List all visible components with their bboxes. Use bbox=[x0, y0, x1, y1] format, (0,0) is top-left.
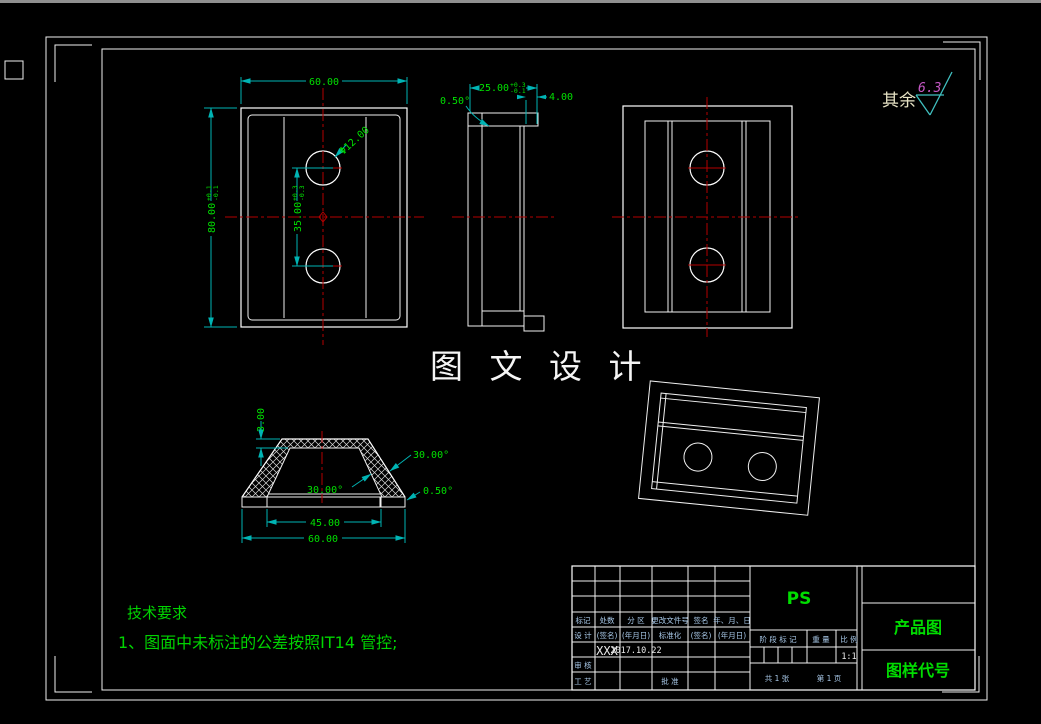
hole-left bbox=[683, 442, 714, 473]
side-view: 25.00 +0.3 -0.1 4.00 0.50° bbox=[440, 81, 573, 331]
tb-header-qianming2: (签名) bbox=[597, 630, 618, 640]
tb-drawing-title: 产品图 bbox=[894, 618, 942, 637]
layout-marker-square bbox=[5, 61, 23, 79]
dim-side-step: 4.00 bbox=[517, 92, 573, 124]
tb-design-date: 2017.10.22 bbox=[610, 646, 661, 656]
dim-side-taper-text: 0.50° bbox=[440, 96, 470, 107]
dim-base-taper: 0.50° bbox=[407, 486, 453, 500]
tech-requirements: 技术要求 1、图面中未标注的公差按照IT14 管控; bbox=[118, 604, 398, 652]
tech-item-1: 1、图面中未标注的公差按照IT14 管控; bbox=[118, 633, 398, 652]
tb-header-biaozhunhua: 标准化 bbox=[659, 630, 682, 640]
dim-hole-spacing-text: 35.00 bbox=[293, 202, 304, 232]
dim-hole-spacing-toldn: -0.3 bbox=[298, 185, 306, 201]
tb-drawing-code: 图样代号 bbox=[886, 661, 950, 680]
hole-right bbox=[747, 451, 778, 482]
dim-inner-width: 45.00 bbox=[267, 509, 381, 529]
tb-page-count: 第 1 页 bbox=[817, 673, 842, 683]
dim-inner-angle: 30.00° bbox=[307, 474, 371, 496]
dim-hole-dia-text: Φ12.00 bbox=[338, 125, 372, 157]
dim-outer-width-text: 60.00 bbox=[308, 534, 338, 545]
cad-viewport: 60.00 80.00 +0.1 -0.1 35.00 +0.3 -0.3 bbox=[0, 0, 1041, 724]
front-view: 60.00 80.00 +0.1 -0.1 35.00 +0.3 -0.3 bbox=[204, 77, 424, 345]
tb-row-shenhe: 审 核 bbox=[574, 660, 592, 670]
dim-front-height-text: 80.00 bbox=[207, 203, 218, 233]
tb-scale-value: 1:1 bbox=[841, 652, 856, 662]
section-view: 3.00 30.00° 30.00° 0.50° 45.00 bbox=[242, 408, 453, 545]
title-block: 标记 处数 分 区 更改文件号 签名 年、月、日 设 计 (签名) (年月日) … bbox=[572, 566, 975, 690]
dim-front-width-text: 60.00 bbox=[309, 77, 339, 88]
tb-row-pizhun: 批 准 bbox=[661, 676, 679, 686]
dim-side-depth-toldn: -0.1 bbox=[510, 87, 526, 95]
tb-header-qianming3: (签名) bbox=[691, 630, 712, 640]
tech-title: 技术要求 bbox=[127, 604, 187, 622]
tb-company: PS bbox=[787, 589, 812, 609]
tb-header-biaoji: 标记 bbox=[576, 615, 591, 625]
dim-front-height-toldn: -0.1 bbox=[212, 185, 220, 201]
tb-header-chushu: 处数 bbox=[600, 615, 615, 625]
tb-header-nianyueri2: (年月日) bbox=[718, 630, 746, 640]
surface-finish-note: 其余 6.3 bbox=[882, 72, 952, 115]
dim-inner-angle-text: 30.00° bbox=[307, 485, 343, 496]
iso-view bbox=[639, 381, 820, 515]
watermark-text: 图 文 设 计 bbox=[430, 347, 649, 386]
tb-sheet-count: 共 1 张 bbox=[765, 674, 790, 683]
dim-outer-angle-text: 30.00° bbox=[413, 450, 449, 461]
surface-roughness-value: 6.3 bbox=[918, 81, 941, 96]
dim-base-taper-text: 0.50° bbox=[423, 486, 453, 497]
tb-header-gaiwenjianhao: 更改文件号 bbox=[651, 615, 689, 625]
window-top-edge bbox=[0, 0, 1041, 3]
tb-row-gongyi: 工 艺 bbox=[574, 677, 591, 686]
tb-scale-label: 比 例 bbox=[840, 634, 857, 644]
dim-front-width: 60.00 bbox=[241, 77, 407, 104]
tb-header-qianming: 签名 bbox=[694, 615, 709, 625]
dim-side-depth-text: 25.00 bbox=[479, 83, 509, 94]
tb-stage-label: 阶 段 标 记 bbox=[759, 634, 797, 644]
tb-header-date: 年、月、日 bbox=[713, 615, 751, 625]
tb-header-nianyueri: (年月日) bbox=[622, 630, 650, 640]
dim-side-depth: 25.00 +0.3 -0.1 bbox=[470, 81, 537, 124]
dim-side-taper: 0.50° bbox=[440, 96, 489, 126]
dim-inner-width-text: 45.00 bbox=[310, 518, 340, 529]
surface-note-label: 其余 bbox=[882, 91, 916, 111]
drawing-canvas: 60.00 80.00 +0.1 -0.1 35.00 +0.3 -0.3 bbox=[0, 0, 1041, 724]
tb-header-fenqu: 分 区 bbox=[627, 616, 645, 625]
tb-header-sheji: 设 计 bbox=[574, 630, 592, 640]
dim-side-step-text: 4.00 bbox=[549, 92, 573, 103]
back-view bbox=[612, 97, 801, 337]
tb-weight-label: 重 量 bbox=[812, 635, 830, 644]
dim-outer-angle: 30.00° bbox=[390, 450, 449, 471]
dim-top-thickness-text: 3.00 bbox=[256, 408, 267, 432]
